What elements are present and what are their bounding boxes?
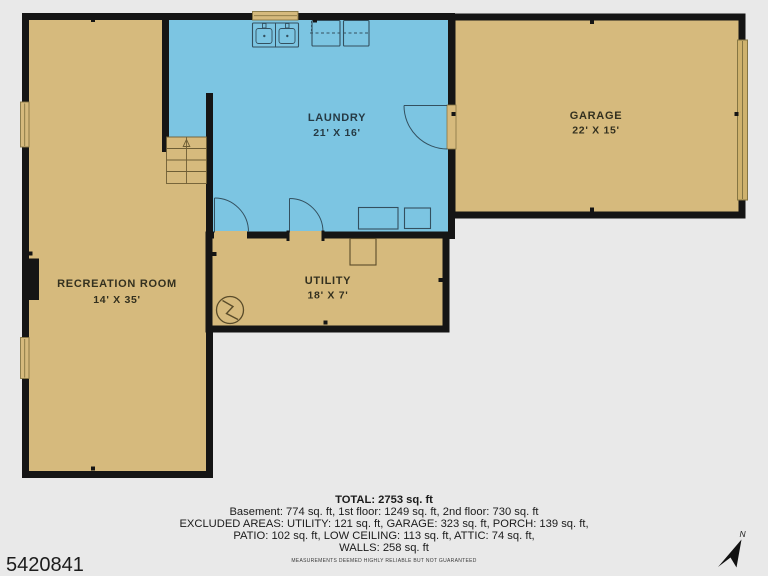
north-label: N	[740, 529, 747, 539]
tick	[590, 208, 594, 212]
staircase	[167, 137, 207, 184]
laundry-label: LAUNDRY	[308, 112, 366, 124]
utility-dims: 18' X 7'	[308, 290, 349, 302]
garage-label: GARAGE	[570, 110, 622, 122]
door-slab	[447, 105, 456, 149]
tick	[590, 20, 594, 24]
tick	[324, 321, 328, 325]
garage-door-icon	[738, 40, 748, 200]
listing-id: 5420841	[6, 554, 84, 576]
recreation-dims: 14' X 35'	[93, 294, 141, 306]
tick	[91, 18, 95, 22]
drain	[286, 35, 288, 37]
floor-plan-drawing: GARAGE 22' X 15' LAUNDRY 21' X 16' UTILI…	[0, 0, 768, 576]
tick	[452, 112, 456, 116]
door-opening	[289, 231, 322, 240]
tick	[91, 467, 95, 471]
tick	[439, 278, 443, 282]
floor-plan-page: GARAGE 22' X 15' LAUNDRY 21' X 16' UTILI…	[0, 0, 768, 576]
door-opening	[214, 231, 247, 240]
door-jamb	[287, 231, 290, 242]
door-jamb	[322, 231, 325, 242]
tick	[735, 112, 739, 116]
garage-dims: 22' X 15'	[572, 125, 620, 137]
drain	[263, 35, 265, 37]
floor-areas-text: Basement: 774 sq. ft, 1st floor: 1249 sq…	[229, 506, 539, 518]
tick	[213, 252, 217, 256]
total-area-text: TOTAL: 2753 sq. ft	[335, 494, 433, 506]
wall-laundry-recreation	[206, 93, 213, 239]
disclaimer-text: MEASUREMENTS DEEMED HIGHLY RELIABLE BUT …	[291, 558, 476, 564]
excluded-areas-text-1: EXCLUDED AREAS: UTILITY: 121 sq. ft, GAR…	[179, 518, 588, 530]
chimney	[28, 259, 40, 301]
tick	[29, 252, 33, 256]
excluded-areas-text-2: PATIO: 102 sq. ft, LOW CEILING: 113 sq. …	[233, 530, 534, 542]
utility-label: UTILITY	[305, 275, 351, 287]
excluded-areas-text-3: WALLS: 258 sq. ft	[339, 542, 430, 554]
laundry-dims: 21' X 16'	[313, 127, 361, 139]
recreation-label: RECREATION ROOM	[57, 278, 177, 290]
tick	[313, 19, 317, 23]
